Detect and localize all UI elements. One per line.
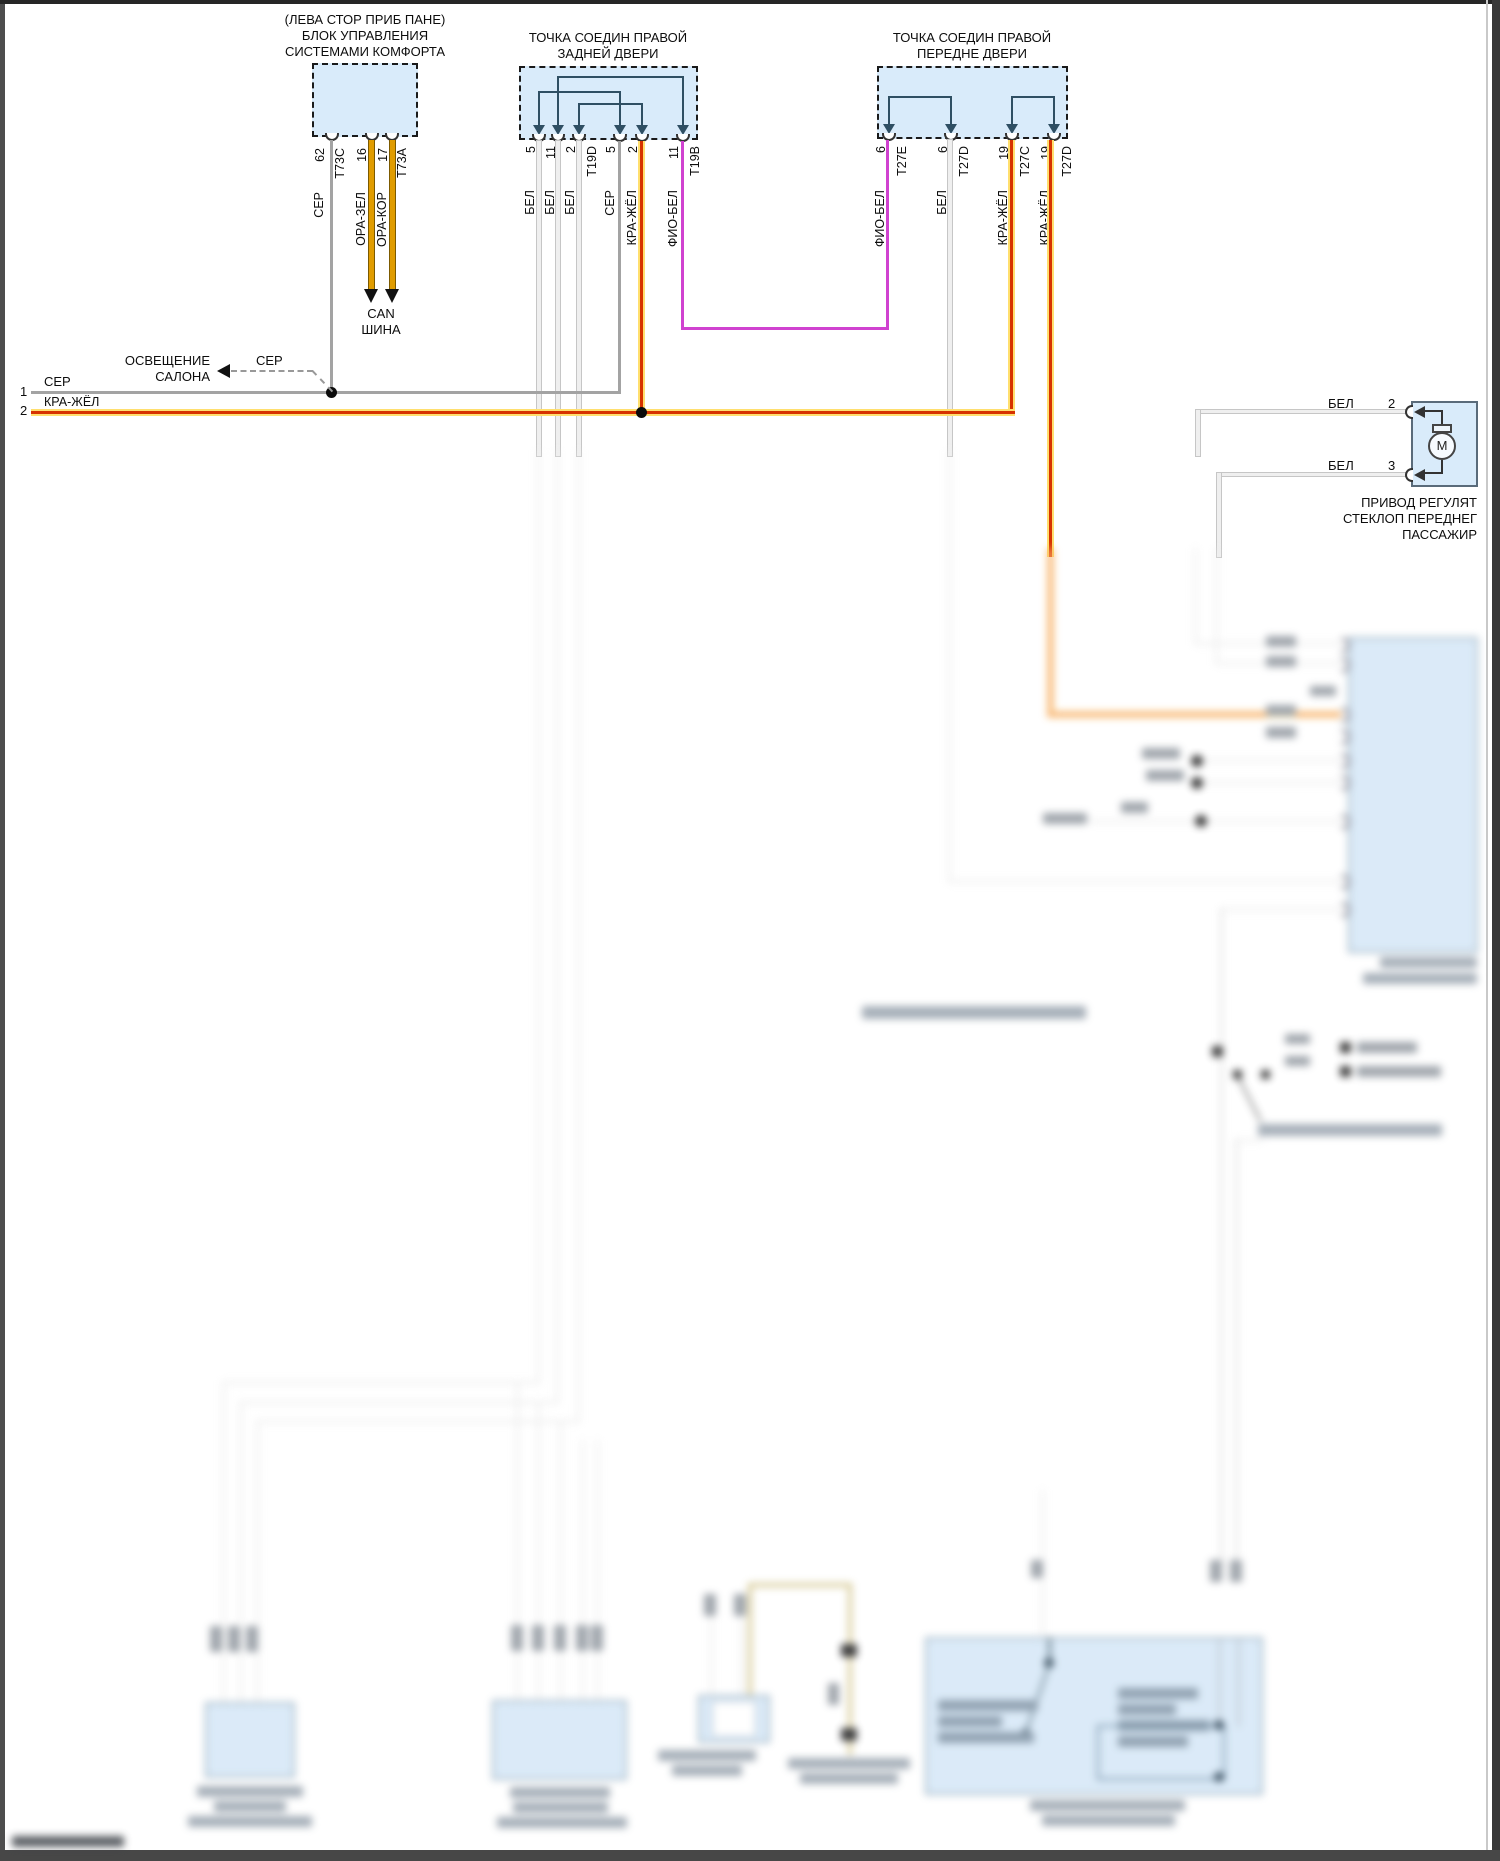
- switch-module-box: [925, 1637, 1263, 1795]
- wire-loop: [1097, 1725, 1225, 1780]
- blurred-caption: [800, 1773, 898, 1784]
- switch-contact: [1021, 1729, 1030, 1738]
- wire-label-ora-zel: ОРА-ЗЕЛ: [354, 192, 368, 246]
- wire: [1237, 1639, 1240, 1727]
- blurred-label: [1266, 636, 1296, 647]
- wire: [1235, 1139, 1238, 1565]
- pin-label-17: 17: [376, 148, 390, 162]
- wire: [1200, 781, 1341, 784]
- wire: [1220, 908, 1223, 1565]
- blurred-text: [1118, 1704, 1176, 1715]
- blurred-note: [1258, 1124, 1442, 1136]
- comfort-module-title-line3: СИСТЕМАМИ КОМФОРТА: [265, 44, 465, 60]
- interior-light-label-line1: ОСВЕЩЕНИЕ: [90, 353, 210, 369]
- wire: [239, 1401, 242, 1702]
- branch-wire-label: СЕР: [256, 353, 283, 369]
- branch-dashed-wire: [231, 370, 313, 372]
- wire-fio-bel-link: [681, 327, 889, 330]
- front-junction-box: [877, 66, 1068, 139]
- wire-can-high: [368, 140, 375, 290]
- frame-right-inner-line: [1486, 0, 1488, 1861]
- motor-pin3-number: 3: [1388, 458, 1395, 474]
- wire-label-ora-kor: ОРА-КОР: [375, 192, 389, 247]
- wire-kra-zhel: [638, 141, 645, 412]
- wire: [556, 450, 559, 1404]
- pin-label: 11: [667, 146, 681, 159]
- frame-left: [0, 0, 5, 1861]
- bridge-wire: [538, 91, 621, 93]
- wire: [239, 1401, 559, 1404]
- legend-bullet: [1340, 1066, 1351, 1077]
- junction-square: [1212, 1046, 1223, 1057]
- bridge-wire: [682, 76, 684, 126]
- splice-dot: [1191, 755, 1203, 767]
- pin-connector: [1341, 776, 1350, 790]
- blurred-pin-label: [228, 1626, 240, 1652]
- blurred-pin-label: [734, 1594, 746, 1616]
- wire-label: БЕЛ: [543, 190, 557, 215]
- blurred-pin-label: [704, 1594, 716, 1616]
- can-bus-label-line2: ШИНА: [331, 322, 431, 338]
- blurred-text: [938, 1716, 1002, 1727]
- bridge-wire: [1053, 96, 1055, 125]
- blurred-pin-label: [591, 1625, 603, 1651]
- blurred-label: [1285, 1034, 1310, 1044]
- bus-line1-number: 1: [20, 384, 27, 400]
- blurred-caption: [188, 1816, 312, 1827]
- wire-yellow: [748, 1583, 852, 1587]
- motor-stub: [1441, 410, 1443, 424]
- connector-block: [841, 1728, 857, 1741]
- frame-right: [1492, 0, 1500, 1861]
- wire: [948, 450, 951, 883]
- wire-yellow: [848, 1583, 852, 1755]
- wire: [559, 1422, 562, 1700]
- bridge-wire: [888, 96, 952, 98]
- blurred-caption: [672, 1765, 742, 1776]
- connector-block: [841, 1644, 857, 1657]
- wire-kra-zhel: [1008, 140, 1015, 412]
- splice-dot: [1195, 815, 1207, 827]
- pin-connector: [1341, 658, 1350, 672]
- comfort-module-title-line1: (ЛЕВА СТОР ПРИБ ПАНЕ): [265, 12, 465, 28]
- blurred-pin-label: [576, 1625, 588, 1651]
- bus-line1-wire-label: СЕР: [44, 374, 71, 390]
- wire: [1222, 908, 1341, 911]
- blurred-text: [938, 1700, 1038, 1711]
- switch-pivot: [1044, 1658, 1054, 1668]
- rear-junction-title-line1: ТОЧКА СОЕДИН ПРАВОЙ: [508, 30, 708, 46]
- motor-caption-line1: ПРИВОД РЕГУЛЯТ: [1277, 495, 1477, 511]
- bridge-wire: [578, 103, 580, 126]
- motor-pin3-wire-label: БЕЛ: [1328, 458, 1354, 474]
- blurred-caption: [197, 1786, 303, 1797]
- comfort-module-box: [312, 63, 418, 137]
- blurred-caption: [788, 1758, 910, 1769]
- wiring-diagram-page: (ЛЕВА СТОР ПРИБ ПАНЕ) БЛОК УПРАВЛЕНИЯ СИ…: [0, 0, 1500, 1861]
- component-box: [205, 1702, 295, 1778]
- front-junction-title-line1: ТОЧКА СОЕДИН ПРАВОЙ: [872, 30, 1072, 46]
- motor-arrow-icon: [1414, 469, 1425, 481]
- interior-light-label-line2: САЛОНА: [90, 369, 210, 385]
- pin-label: 5: [604, 146, 618, 153]
- wire-fio-bel: [886, 140, 889, 330]
- wire-label: ФИО-БЕЛ: [873, 190, 887, 247]
- splice-dot: [1191, 777, 1203, 789]
- pin-connector: [1341, 815, 1350, 829]
- blurred-note: [862, 1006, 1086, 1019]
- wire: [537, 1403, 540, 1700]
- pin-connector: [1405, 405, 1413, 419]
- blurred-pin-label: [554, 1625, 566, 1651]
- wire-bel-motor2: [1196, 410, 1412, 413]
- switch-lever: [1026, 1665, 1050, 1730]
- comfort-module-title-line2: БЛОК УПРАВЛЕНИЯ: [265, 28, 465, 44]
- wire-bel-motor3-drop: [1217, 473, 1221, 557]
- bridge-wire: [1011, 96, 1055, 98]
- branch-arrow-icon: [217, 364, 230, 378]
- bus-wire-kra-zhel: [31, 409, 1015, 416]
- component-box: [698, 1695, 770, 1743]
- blurred-label: [1266, 656, 1296, 667]
- wire: [1259, 1121, 1262, 1141]
- motor-symbol: M: [1428, 432, 1456, 460]
- wire: [1215, 548, 1218, 665]
- can-arrow-icon: [385, 289, 399, 303]
- blurred-label: [1266, 705, 1296, 716]
- bridge-wire: [538, 91, 540, 126]
- legend-bullet: [1340, 1042, 1351, 1053]
- wire: [1194, 642, 1341, 645]
- door-module-box: [1348, 637, 1478, 953]
- pin-connector: [1341, 638, 1350, 652]
- wire: [1218, 1639, 1221, 1727]
- component-inner: [712, 1701, 756, 1737]
- blurred-text: [938, 1732, 1034, 1743]
- wire-ser: [618, 141, 621, 393]
- wire: [581, 1440, 584, 1700]
- pin-connector: [1341, 730, 1350, 744]
- junction-dot: [1214, 1772, 1224, 1782]
- blurred-label: [1121, 802, 1148, 813]
- blurred-label: [1043, 813, 1087, 824]
- bridge-wire: [557, 76, 684, 78]
- blurred-text: [1118, 1720, 1210, 1731]
- wire-bel-motor2-drop: [1196, 410, 1200, 456]
- bridge-wire: [578, 103, 643, 105]
- wire: [256, 1420, 259, 1702]
- bridge-wire: [1011, 96, 1013, 125]
- wire: [577, 450, 580, 1423]
- wire: [948, 880, 1341, 883]
- switch-lever: [1238, 1078, 1262, 1122]
- bridge-wire: [950, 96, 952, 125]
- wire-bel-motor3: [1217, 473, 1412, 476]
- pin-label-16: 16: [355, 148, 369, 162]
- pin-label: T27C: [1018, 146, 1032, 177]
- wire-label: БЕЛ: [523, 190, 537, 215]
- blurred-text: [1118, 1688, 1198, 1699]
- junction-dot: [1214, 1720, 1224, 1730]
- blurred-caption: [1363, 973, 1477, 984]
- wire-kra-zhel-blurred: [1047, 711, 1348, 718]
- blurred-pin-label: [511, 1625, 523, 1651]
- wire-label: СЕР: [603, 190, 617, 216]
- wire: [710, 1616, 713, 1695]
- pin-connector: [1341, 708, 1350, 722]
- blurred-region: [0, 0, 1500, 1861]
- wire: [256, 1420, 580, 1423]
- pin-connector: [1341, 754, 1350, 768]
- pin-connector: [1341, 875, 1350, 889]
- wire: [1200, 759, 1341, 762]
- can-arrow-icon: [364, 289, 378, 303]
- blurred-caption: [513, 1802, 608, 1813]
- wire-label: ФИО-БЕЛ: [666, 190, 680, 247]
- frame-top: [0, 0, 1500, 4]
- wire: [596, 1440, 599, 1700]
- pin-label-t73a: T73A: [395, 148, 409, 178]
- blurred-caption: [510, 1787, 610, 1798]
- wire: [222, 1381, 540, 1384]
- switch-contact: [1233, 1070, 1242, 1079]
- blurred-caption: [1380, 957, 1477, 968]
- blurred-pin-label: [246, 1626, 258, 1652]
- blurred-label: [1310, 686, 1336, 696]
- pin-connector: [1405, 468, 1413, 482]
- blurred-label: [1357, 1042, 1417, 1053]
- pin-label: T19D: [585, 146, 599, 177]
- wire: [1215, 662, 1341, 665]
- bus-line2-number: 2: [20, 403, 27, 419]
- motor-caption-line3: ПАССАЖИР: [1277, 527, 1477, 543]
- pin-connector: [1341, 903, 1350, 917]
- blurred-pin-label: [532, 1625, 544, 1651]
- pin-label: 2: [564, 146, 578, 153]
- wire-kra-zhel: [1047, 140, 1054, 557]
- rear-junction-title-line2: ЗАДНЕЙ ДВЕРИ: [508, 46, 708, 62]
- pin-label: T27D: [1060, 146, 1074, 177]
- blurred-label: [1146, 770, 1184, 781]
- switch-contact: [1261, 1070, 1270, 1079]
- blurred-caption: [1042, 1815, 1175, 1826]
- blurred-label: [1285, 1056, 1310, 1066]
- blurred-pin-label: [210, 1626, 222, 1652]
- blurred-label: [1142, 748, 1180, 759]
- wire-label: КРА-ЖЁЛ: [625, 190, 639, 245]
- wire: [1235, 1139, 1262, 1142]
- pin-label: T19B: [688, 146, 702, 176]
- bridge-wire: [641, 103, 643, 126]
- can-bus-label-line1: CAN: [331, 306, 431, 322]
- blurred-label: [1266, 727, 1296, 738]
- blurred-caption: [658, 1750, 756, 1761]
- blurred-caption: [214, 1801, 286, 1812]
- pin-connector: [882, 133, 896, 141]
- motor-caption-line2: СТЕКЛОП ПЕРЕДНЕГ: [1277, 511, 1477, 527]
- pin-label: 5: [524, 146, 538, 153]
- pin-label-62: 62: [313, 148, 327, 162]
- wire-can-low: [389, 140, 396, 290]
- wire: [1090, 820, 1341, 823]
- pin-label: T27E: [895, 146, 909, 176]
- wire-yellow: [748, 1583, 752, 1695]
- blurred-pin-label: [1230, 1560, 1242, 1582]
- wire-label-ser: СЕР: [312, 192, 326, 218]
- blurred-pin-label: [1031, 1560, 1043, 1578]
- pin-label-t73c: T73C: [333, 148, 347, 179]
- wire: [537, 450, 540, 1384]
- wire-label: БЕЛ: [563, 190, 577, 215]
- bridge-wire: [557, 76, 559, 126]
- wire-fio-bel: [681, 141, 684, 330]
- wire: [1194, 548, 1197, 645]
- blurred-pin-label: [1210, 1560, 1222, 1582]
- wire: [516, 1383, 519, 1700]
- wire-label: БЕЛ: [935, 190, 949, 215]
- bridge-wire: [619, 91, 621, 126]
- blurred-caption: [497, 1817, 627, 1828]
- switch-stub: [1048, 1637, 1051, 1659]
- junction-dot: [636, 407, 647, 418]
- wire-kra-zhel-blurred: [1047, 548, 1054, 718]
- component-box: [492, 1700, 627, 1780]
- bridge-wire: [888, 96, 890, 125]
- blurred-watermark: [12, 1836, 124, 1847]
- front-junction-title-line2: ПЕРЕДНЕ ДВЕРИ: [872, 46, 1072, 62]
- pin-label: T27D: [957, 146, 971, 177]
- blurred-text: [1118, 1736, 1188, 1747]
- bus-line2-wire-label: КРА-ЖЁЛ: [44, 395, 99, 410]
- blurred-pin-label: [828, 1683, 839, 1705]
- wire: [1041, 1490, 1044, 1637]
- blurred-label: [1357, 1066, 1441, 1077]
- wire-ser-vertical: [330, 140, 333, 393]
- blurred-caption: [1030, 1800, 1185, 1811]
- motor-stub: [1425, 472, 1443, 474]
- wire: [222, 1381, 225, 1702]
- wire: [740, 1616, 743, 1695]
- frame-bottom: [0, 1850, 1500, 1861]
- motor-arrow-icon: [1414, 406, 1425, 418]
